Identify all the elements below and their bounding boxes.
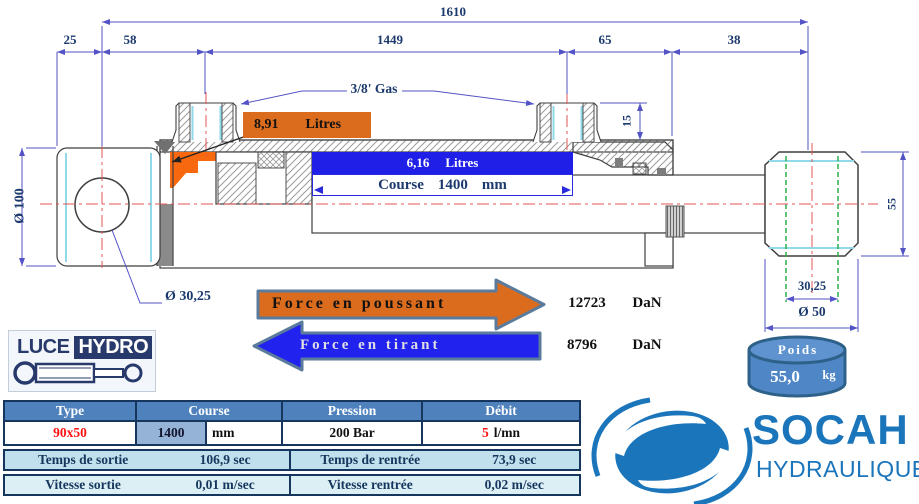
speed-in-label: Vitesse rentrée [291,477,449,493]
time-in-label: Temps de rentrée [291,452,449,468]
dim-38: 38 [728,33,741,47]
dim-65: 65 [599,33,612,47]
lucehydro-cylinder-glyph [9,359,149,387]
dim-port-height: 15 [620,115,633,127]
header-debit: Débit [423,402,579,420]
spec-table: Type Course Pression Débit 90x50 1400 mm… [3,400,581,496]
header-type: Type [5,402,137,420]
weight-value: 55,0 [770,368,800,387]
port-thread-label: 3/8' Gas [351,82,398,97]
force-pull-label: Force en tirant [300,337,441,354]
pull-volume-value: 6,16 [407,155,430,171]
pull-volume-unit: Litres [445,155,478,171]
dim-1449: 1449 [377,33,403,47]
time-out-value: 106,9 sec [161,452,289,468]
dim-rod-diameter: Ø 50 [798,305,825,320]
time-in-cell: Temps de rentrée 73,9 sec [291,451,579,469]
force-pull-value: 8796 [567,337,597,354]
spec-table-header-row: Type Course Pression Débit [3,400,581,422]
spec-table-value-row: 90x50 1400 mm 200 Bar 5 l/mn [3,422,581,446]
force-push-unit: DaN [632,295,661,312]
socah-logo-emblem [594,400,750,504]
header-pression: Pression [283,402,423,420]
stroke-arrow-right [562,186,571,194]
speed-out-value: 0,01 m/sec [161,477,289,493]
socah-logo-name: SOCAH [752,406,909,454]
time-in-value: 73,9 sec [449,452,579,468]
lucehydro-logo-text1: LUCE [17,336,69,359]
stroke-unit: mm [482,177,507,194]
spec-table-speed-row: Vitesse sortie 0,01 m/sec Vitesse rentré… [3,474,581,496]
weight-label: Poids [778,343,818,357]
cell-pression-value: 200 Bar [283,422,423,444]
stroke-arrow-left [314,186,323,194]
time-out-label: Temps de sortie [5,452,161,468]
stroke-value: 1400 [438,177,468,194]
header-course: Course [137,402,283,420]
dim-bore-diameter: Ø 100 [12,188,27,223]
force-push-label: Force en poussant [272,295,446,313]
lucehydro-logo: LUCE HYDRO [8,330,156,392]
spec-table-time-row: Temps de sortie 106,9 sec Temps de rentr… [3,449,581,471]
push-volume-value: 8,91 [254,117,279,133]
cell-type-value: 90x50 [5,422,137,444]
cell-course-unit: mm [207,422,283,444]
speed-out-label: Vitesse sortie [5,477,161,493]
lucehydro-logo-text2: HYDRO [74,336,152,359]
debit-unit: l/mn [494,425,520,441]
speed-out-cell: Vitesse sortie 0,01 m/sec [5,476,291,494]
cell-course-value: 1400 [137,422,207,444]
pull-volume-box: 6,16 Litres [312,152,573,174]
dim-25: 25 [64,33,77,47]
dim-block-height: 55 [885,198,898,210]
socah-logo-subtitle: HYDRAULIQUE [756,456,919,483]
time-out-cell: Temps de sortie 106,9 sec [5,451,291,469]
force-push-value: 12723 [568,295,606,312]
speed-in-cell: Vitesse rentrée 0,02 m/sec [291,476,579,494]
speed-in-value: 0,02 m/sec [449,477,579,493]
weight-unit: kg [822,369,835,383]
force-pull-unit: DaN [632,337,661,354]
dim-58: 58 [124,33,137,47]
cylinder-datasheet-page: 1610 25 58 1449 65 38 Ø 100 15 55 Ø 30,2… [0,0,919,504]
debit-number: 5 [482,425,489,441]
push-volume-unit: Litres [306,117,342,133]
stroke-dimension-box: Course 1400 mm [312,174,573,196]
push-volume-box: 8,91 Litres [243,112,371,138]
dim-total-length: 1610 [440,5,466,19]
dim-eye-diameter: Ø 30,25 [165,289,211,304]
cell-debit-value: 5 l/mn [423,422,579,444]
stroke-label: Course [378,177,424,194]
dim-rodend-bore: 30,25 [798,280,826,294]
